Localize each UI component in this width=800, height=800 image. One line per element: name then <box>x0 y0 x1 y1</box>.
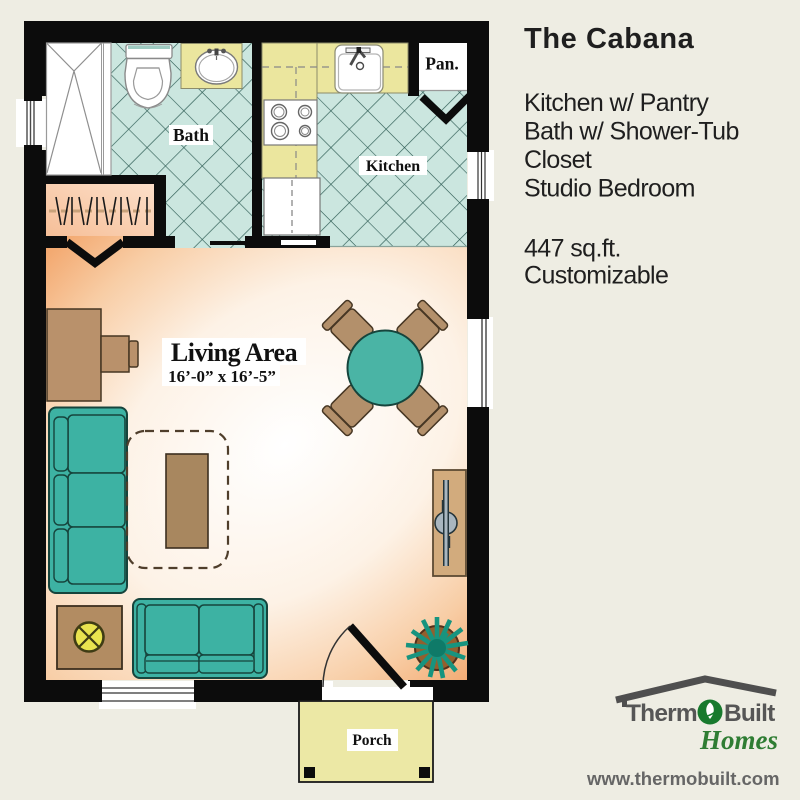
svg-text:Bath w/ Shower-Tub: Bath w/ Shower-Tub <box>524 118 739 146</box>
svg-text:Pan.: Pan. <box>425 54 459 74</box>
svg-text:Closet: Closet <box>524 146 592 174</box>
svg-text:Kitchen: Kitchen <box>366 158 420 175</box>
svg-text:Homes: Homes <box>699 725 778 755</box>
svg-text:www.thermobuilt.com: www.thermobuilt.com <box>586 768 780 789</box>
svg-text:Living Area: Living Area <box>171 338 298 367</box>
svg-text:Kitchen w/ Pantry: Kitchen w/ Pantry <box>524 89 709 117</box>
svg-text:Built: Built <box>724 700 775 727</box>
svg-text:Therm: Therm <box>626 700 697 727</box>
svg-text:Bath: Bath <box>173 125 209 145</box>
svg-text:Studio Bedroom: Studio Bedroom <box>524 175 695 203</box>
svg-text:The Cabana: The Cabana <box>524 23 695 55</box>
svg-text:447 sq.ft.: 447 sq.ft. <box>524 235 621 263</box>
svg-text:Porch: Porch <box>352 732 392 749</box>
svg-text:16’-0” x 16’-5”: 16’-0” x 16’-5” <box>168 367 276 386</box>
svg-text:Customizable: Customizable <box>524 262 668 290</box>
